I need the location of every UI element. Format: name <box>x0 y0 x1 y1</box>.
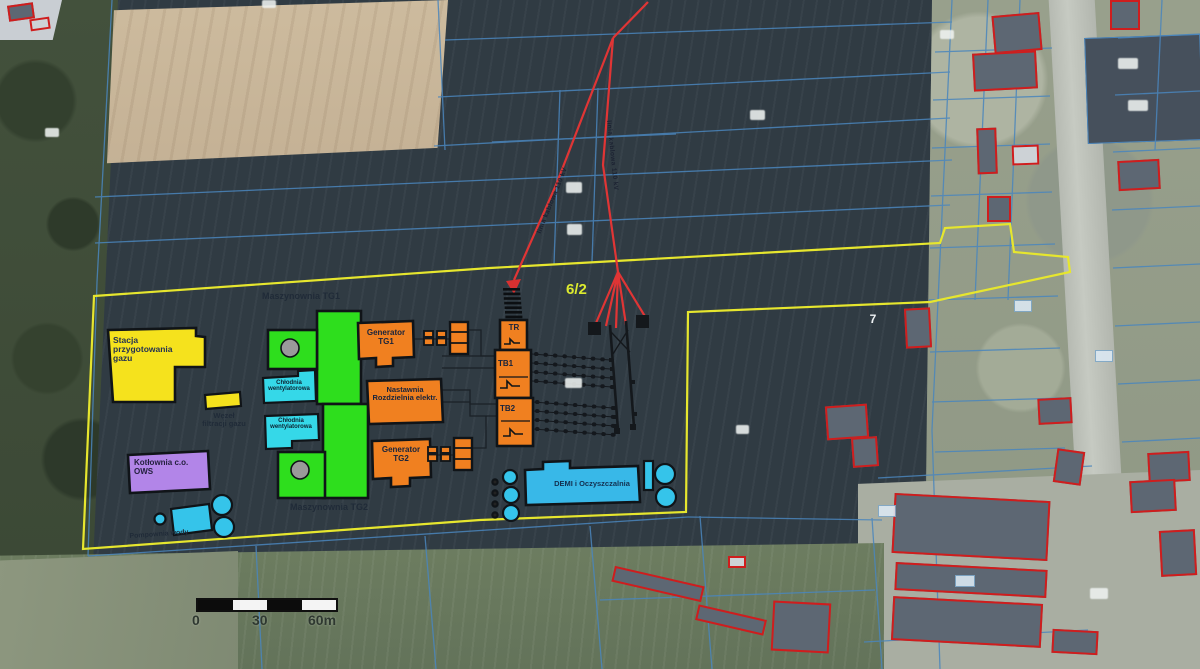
busbar-lines <box>532 354 616 435</box>
parcel-number-blob <box>736 425 749 434</box>
parcel-number-blob <box>262 0 276 8</box>
power-line-arrowhead <box>506 279 521 294</box>
scale-bar <box>196 598 338 612</box>
gas-filter-shape <box>205 392 241 409</box>
hall-tg1-shape <box>317 311 361 404</box>
scale-tick-60: 60m <box>308 612 336 628</box>
tr-label: TR <box>502 324 526 333</box>
site-overlay <box>0 0 1200 669</box>
tb2-label: TB2 <box>500 405 524 414</box>
generator-tg2-label: Generator TG2 <box>375 446 427 463</box>
parcel-number-blob <box>1090 588 1108 599</box>
scale-segment <box>198 600 233 610</box>
address-plate <box>878 505 896 517</box>
cooler-2-label: Chłodnia wentylatorowa <box>268 418 314 431</box>
parcel-number-blob <box>45 128 59 137</box>
parcel-number-site: 6/2 <box>566 282 610 298</box>
address-plate <box>1095 350 1113 362</box>
switchyard-node <box>636 315 649 328</box>
parcel-number-east: 7 <box>862 313 884 326</box>
scale-tick-30: 30 <box>252 612 268 628</box>
scale-segment <box>267 600 302 610</box>
gas-prep-label: Stacja przygotowania gazu <box>113 336 191 364</box>
power-line-left <box>514 38 613 280</box>
parcel-number-blob <box>940 30 954 39</box>
scale-tick-0: 0 <box>192 612 200 628</box>
vent-stack <box>291 461 309 479</box>
parcel-number-blob <box>1128 100 1148 111</box>
address-plate <box>955 575 975 587</box>
address-plate <box>1014 300 1032 312</box>
hall-tg2-label: Maszynownia TG2 <box>286 503 372 513</box>
site-plan-map: Stacja przygotowania gazu Węzeł filtracj… <box>0 0 1200 669</box>
parcel-number-blob <box>566 182 582 193</box>
cable-marks <box>503 288 522 318</box>
vent-stack <box>281 339 299 357</box>
cooler-1-label: Chłodnia wentylatorowa <box>266 380 312 393</box>
tb1-shape <box>495 350 531 398</box>
switchyard-node <box>588 322 601 335</box>
control-room-label: Nastawnia Rozdzielnia elektr. <box>372 386 438 402</box>
parcel-number-blob <box>750 110 765 120</box>
parcel-number-blob <box>1118 58 1138 69</box>
parcel-number-blob <box>567 224 582 235</box>
hall-tg1-label: Maszynownia TG1 <box>258 292 344 302</box>
parcel-number-blob <box>565 378 582 388</box>
hall-tg2-shape <box>323 404 368 498</box>
boiler-label: Kotłownia c.o. OWS <box>134 459 202 476</box>
scale-segment <box>233 600 268 610</box>
demi-label: DEMI i Oczyszczalnia <box>550 480 634 488</box>
gas-filter-label: Węzeł filtracji gazu <box>201 412 247 428</box>
tb1-label: TB1 <box>498 360 522 369</box>
power-lines <box>514 2 648 328</box>
generator-tg1-label: Generator TG1 <box>360 329 412 346</box>
scale-segment <box>302 600 337 610</box>
